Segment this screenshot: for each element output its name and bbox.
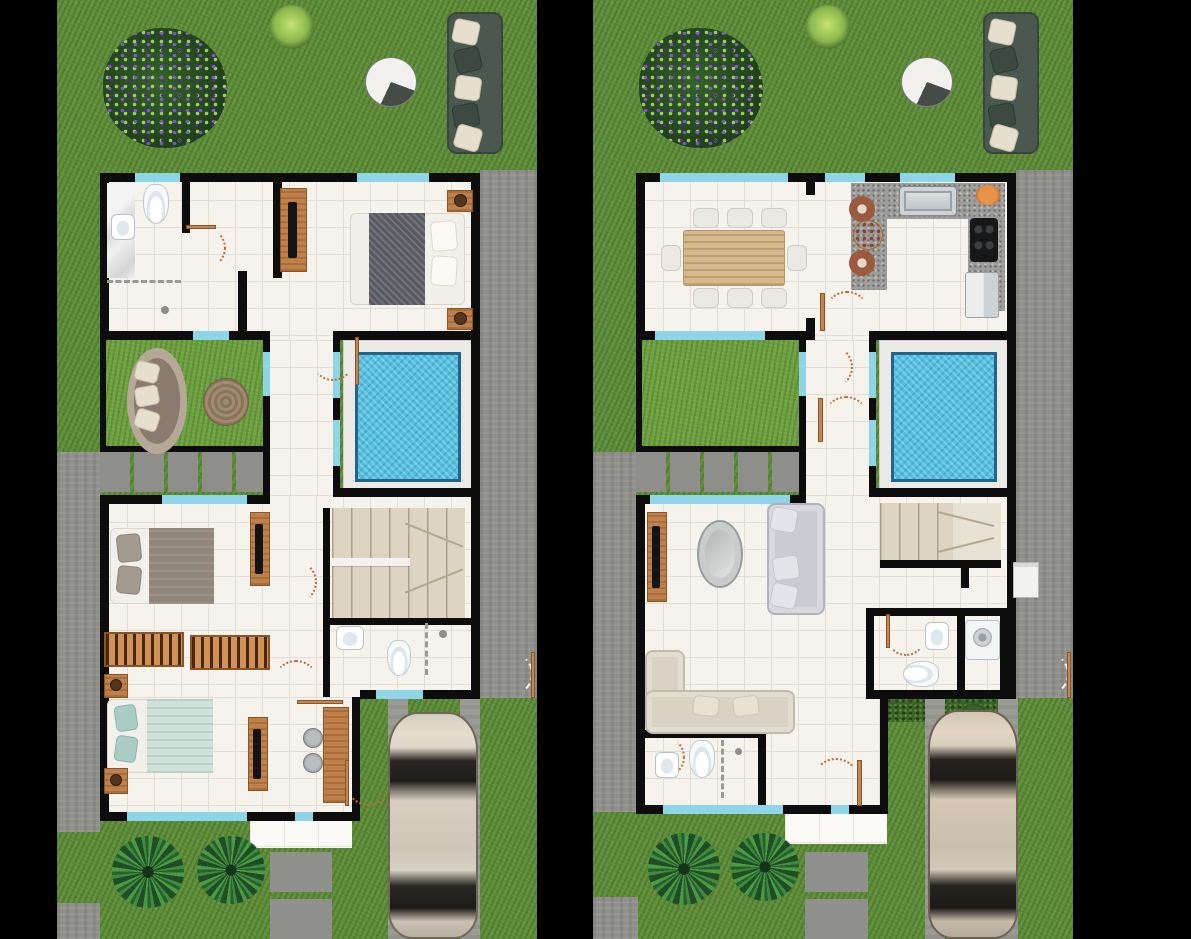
wall <box>100 331 106 452</box>
shower-screen <box>107 280 181 283</box>
wall <box>869 488 1016 497</box>
wall <box>869 331 1016 340</box>
pool <box>891 352 997 482</box>
window <box>663 805 783 814</box>
coffee-table-top <box>705 530 735 578</box>
stair-landing <box>332 558 410 566</box>
palm-tree <box>648 833 720 905</box>
cushion <box>769 506 799 534</box>
window <box>193 331 229 340</box>
window <box>295 812 313 821</box>
dining-chair <box>693 288 719 308</box>
wall <box>636 331 642 452</box>
window <box>900 173 955 182</box>
wall <box>636 446 799 452</box>
food-tray <box>976 185 1000 205</box>
window <box>825 173 865 182</box>
cushion <box>987 18 1017 47</box>
cushion <box>769 582 799 611</box>
dining-chair <box>761 208 787 228</box>
cushion <box>771 554 800 581</box>
door-swing <box>824 291 870 337</box>
door-swing <box>809 345 853 389</box>
wall <box>182 173 190 233</box>
wall <box>806 318 815 340</box>
pillow <box>116 565 143 595</box>
tv <box>255 524 263 574</box>
wall <box>471 495 480 697</box>
wall <box>636 495 645 814</box>
gate-leaf <box>1067 652 1071 698</box>
tv <box>288 202 297 258</box>
pillow <box>113 704 138 733</box>
cushion <box>133 384 160 408</box>
door-swing <box>311 337 355 381</box>
garden-table <box>365 57 417 107</box>
palm-tree <box>731 833 799 901</box>
wall <box>880 697 888 808</box>
plate <box>849 196 875 222</box>
shower-screen <box>425 623 428 675</box>
window <box>655 331 765 340</box>
dining-chair <box>661 245 681 271</box>
wall <box>961 560 969 588</box>
cushion <box>453 74 482 101</box>
dining-chair <box>761 288 787 308</box>
stool <box>303 753 323 773</box>
toilet <box>387 640 411 676</box>
lamp <box>110 679 122 691</box>
wardrobe <box>190 635 270 670</box>
wall <box>238 271 247 335</box>
corner-sofa <box>645 690 795 734</box>
dining-chair <box>787 245 807 271</box>
door-swing <box>184 227 226 269</box>
wall <box>636 173 645 340</box>
bathroom-sink <box>111 214 135 240</box>
door-swing <box>823 396 869 442</box>
gate-leaf <box>531 652 535 698</box>
floor-drain <box>161 306 169 314</box>
dining-chair <box>727 288 753 308</box>
window <box>127 812 247 821</box>
door-leaf <box>297 700 343 704</box>
gate-swing <box>1025 652 1069 696</box>
side-path-left <box>593 452 636 812</box>
window <box>869 420 876 466</box>
side-path-right <box>480 170 537 698</box>
wall <box>333 488 480 497</box>
wall <box>323 508 330 618</box>
pizza <box>853 220 883 250</box>
flowering-shrub <box>639 28 763 148</box>
parked-car <box>928 710 1018 939</box>
window <box>650 495 790 504</box>
wall <box>866 690 1016 699</box>
wall <box>880 560 1001 568</box>
parked-car <box>388 712 478 939</box>
duvet <box>147 699 213 773</box>
toilet <box>903 661 939 687</box>
stepping-stones <box>636 452 806 492</box>
flowering-shrub <box>103 28 227 148</box>
shrub <box>806 5 850 49</box>
cushion <box>989 74 1018 101</box>
round-rug <box>203 378 249 426</box>
door-swing <box>273 560 317 604</box>
window <box>135 173 180 182</box>
washer-drum <box>973 628 992 647</box>
window <box>162 495 247 504</box>
cooktop <box>970 218 998 262</box>
door-swing <box>643 736 685 778</box>
decor-bowl <box>454 194 467 207</box>
walkway-pavers <box>270 852 332 939</box>
window <box>799 352 806 396</box>
refrigerator <box>965 272 999 318</box>
palm-tree <box>197 836 265 904</box>
corner-pad <box>57 903 100 939</box>
pillow <box>430 255 458 287</box>
toilet <box>143 184 169 224</box>
window <box>660 173 788 182</box>
floor-plan-ground-level <box>593 0 1073 939</box>
walkway-pavers <box>805 845 868 939</box>
wall <box>758 730 766 805</box>
side-path-left <box>57 452 100 832</box>
duvet <box>369 213 425 305</box>
wall <box>471 340 480 497</box>
wall <box>1007 340 1016 497</box>
gate-swing <box>489 652 533 696</box>
courtyard-lawn <box>636 340 799 452</box>
cushion <box>451 18 481 47</box>
plate <box>849 250 875 276</box>
shower-head <box>735 748 742 755</box>
garden-table <box>901 57 953 107</box>
corner-pad <box>593 897 638 939</box>
side-path-right <box>1016 170 1073 698</box>
wall <box>1007 173 1016 340</box>
wall <box>323 618 480 625</box>
wall <box>957 616 965 690</box>
dining-chair <box>693 208 719 228</box>
door-swing <box>886 616 926 656</box>
toilet <box>689 740 715 778</box>
dining-table <box>683 230 785 286</box>
dining-chair <box>727 208 753 228</box>
cushion <box>692 695 720 718</box>
shower-screen <box>721 740 724 798</box>
stair-landing <box>953 503 1001 563</box>
window <box>263 352 270 396</box>
window <box>376 690 423 699</box>
window <box>357 173 429 182</box>
tv <box>652 526 660 588</box>
wall <box>1000 608 1008 698</box>
decor-bowl <box>454 312 467 325</box>
stool <box>303 728 323 748</box>
palm-tree <box>112 836 184 908</box>
wall <box>100 446 263 452</box>
bathroom-sink <box>336 626 364 650</box>
pillow <box>430 220 459 252</box>
site-plan-canvas <box>0 0 1191 939</box>
entry-door-swing <box>345 758 393 806</box>
window <box>869 352 876 398</box>
door-leaf <box>345 760 349 806</box>
lamp <box>110 774 122 786</box>
floor-plan-upper-level <box>57 0 537 939</box>
utility-box <box>1013 562 1039 598</box>
door-leaf <box>355 337 359 385</box>
pool <box>355 352 461 482</box>
window <box>831 805 849 814</box>
duvet <box>149 528 214 604</box>
wall <box>866 608 874 698</box>
entry-door-swing <box>812 758 860 806</box>
window <box>333 420 340 466</box>
stepping-stones <box>100 452 270 492</box>
kitchen-sink <box>899 186 957 216</box>
cushion <box>732 694 761 717</box>
shower-head <box>439 630 447 638</box>
pillow <box>116 533 143 563</box>
tv <box>253 729 261 779</box>
wardrobe <box>104 632 184 667</box>
shrub <box>270 5 314 49</box>
wall <box>323 625 330 697</box>
pillow <box>113 735 138 764</box>
wall <box>806 173 815 195</box>
sink <box>925 622 949 650</box>
